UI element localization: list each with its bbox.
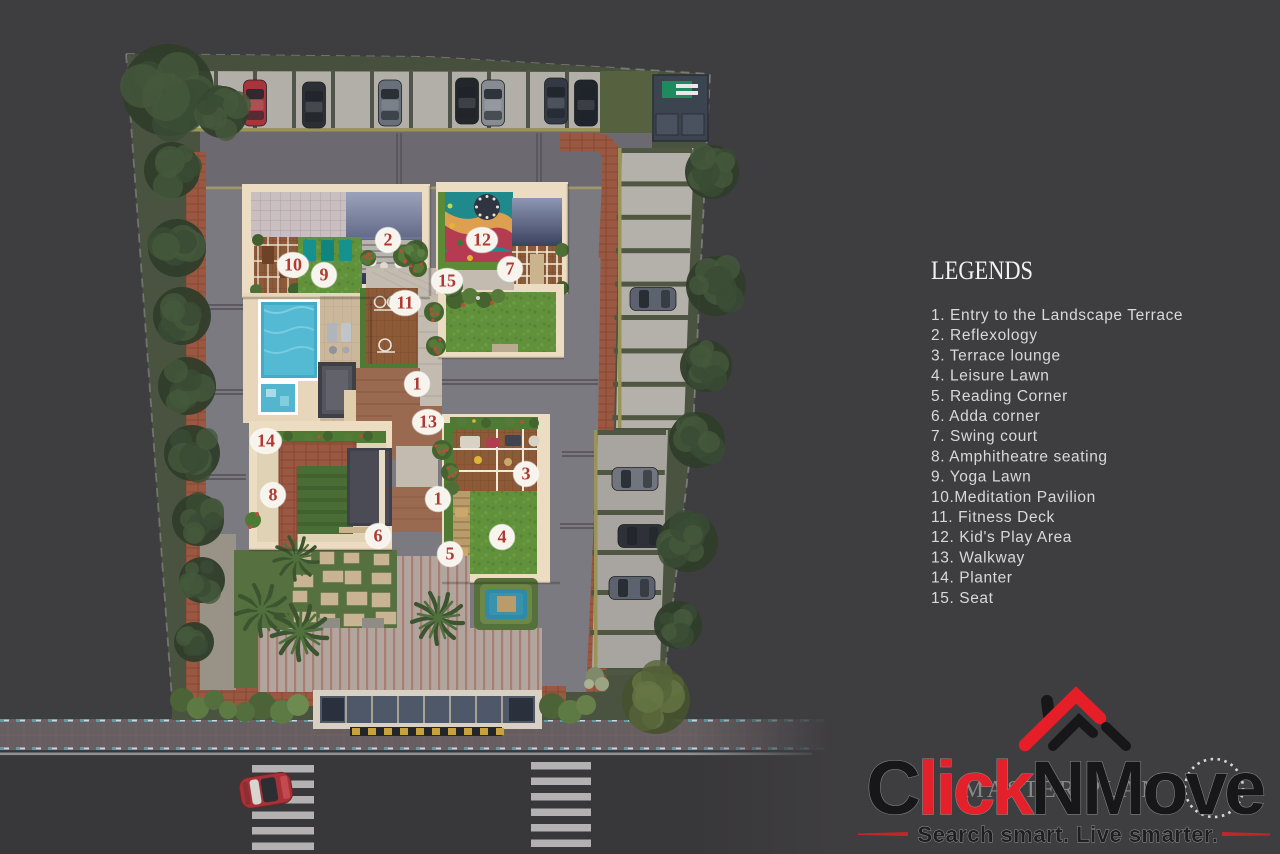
svg-text:9: 9 [320, 265, 329, 285]
svg-text:1: 1 [413, 374, 422, 394]
svg-text:14. Planter: 14. Planter [931, 570, 1013, 587]
svg-text:14: 14 [257, 431, 275, 451]
svg-text:1: 1 [434, 489, 443, 509]
svg-text:4. Leisure Lawn: 4. Leisure Lawn [931, 368, 1049, 385]
svg-text:4: 4 [498, 527, 507, 547]
svg-text:5: 5 [446, 544, 455, 564]
svg-text:12. Kid's Play Area: 12. Kid's Play Area [931, 529, 1072, 546]
svg-text:ClickNMove: ClickNMove [866, 746, 1264, 831]
svg-text:11. Fitness Deck: 11. Fitness Deck [931, 509, 1055, 526]
svg-text:3: 3 [522, 464, 531, 484]
svg-text:5. Reading Corner: 5. Reading Corner [931, 388, 1068, 405]
svg-text:7: 7 [506, 259, 515, 279]
svg-text:15. Seat: 15. Seat [931, 590, 994, 607]
svg-text:LEGENDS: LEGENDS [931, 256, 1033, 285]
svg-text:11: 11 [396, 293, 413, 313]
svg-text:12: 12 [473, 230, 491, 250]
svg-text:8: 8 [269, 485, 278, 505]
svg-text:2: 2 [384, 230, 393, 250]
svg-text:Search smart. Live smarter.: Search smart. Live smarter. [918, 822, 1219, 847]
svg-text:13. Walkway: 13. Walkway [931, 549, 1025, 566]
svg-text:8. Amphitheatre seating: 8. Amphitheatre seating [931, 448, 1108, 465]
svg-text:7. Swing court: 7. Swing court [931, 428, 1038, 445]
svg-text:10: 10 [284, 255, 302, 275]
svg-text:9. Yoga Lawn: 9. Yoga Lawn [931, 469, 1031, 486]
svg-text:10.Meditation Pavilion: 10.Meditation Pavilion [931, 489, 1096, 506]
svg-text:13: 13 [419, 412, 437, 432]
svg-text:2. Reflexology: 2. Reflexology [931, 327, 1038, 344]
svg-text:15: 15 [438, 271, 456, 291]
svg-text:1. Entry to the Landscape Terr: 1. Entry to the Landscape Terrace [931, 307, 1183, 324]
svg-text:3. Terrace lounge: 3. Terrace lounge [931, 347, 1061, 364]
svg-text:6. Adda corner: 6. Adda corner [931, 408, 1040, 425]
svg-text:6: 6 [374, 526, 383, 546]
